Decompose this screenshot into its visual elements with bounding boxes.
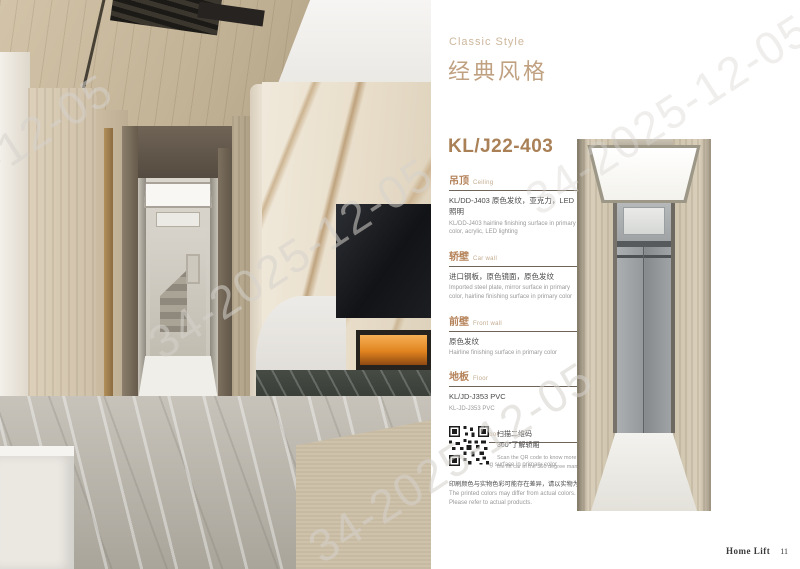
spec-desc-zh: KL/JD-J353 PVC (449, 391, 577, 402)
spec-header: 吊顶Ceiling (449, 172, 577, 187)
wall-picture-frame (186, 254, 200, 284)
spec-header: 轿壁Car wall (449, 248, 577, 263)
tv-screen (336, 204, 431, 318)
elevator-cab-interior (138, 178, 218, 400)
spec-section-floor: 地板Floor KL/JD-J353 PVC KL-JD-J353 PVC (449, 368, 577, 413)
pr-elevator-doors (617, 247, 671, 433)
spec-title-zh: 吊顶 (449, 176, 469, 187)
qr-code-icon (449, 426, 489, 466)
style-label-en: Classic Style (449, 36, 525, 48)
model-code: KL/J22-403 (448, 136, 553, 158)
spec-title-en: Car wall (473, 256, 497, 262)
spec-title-zh: 地板 (449, 372, 469, 383)
disclaimer-en: The printed colors may differ from actua… (449, 490, 581, 508)
pr-ceiling-light-panel (589, 148, 699, 200)
page-footer: Home Lift11 (726, 541, 788, 559)
pr-door-split-line (643, 247, 644, 433)
elevator-door-frame-left (122, 126, 138, 440)
spec-desc-zh: KL/DD-J403 原色发纹，亚克力，LED照明 (449, 195, 577, 218)
pr-door-rail (617, 255, 671, 258)
footer-page-number: 11 (780, 547, 788, 556)
qr-block: 扫描二维码 360°了解轿厢 Scan the QR code to know … (449, 426, 592, 471)
spec-title-en: Front wall (473, 321, 502, 327)
divider (449, 386, 577, 387)
spec-section-front-wall: 前壁Front wall 原色发纹 Hairline finishing sur… (449, 313, 577, 358)
spec-desc-en: KL-JD-J353 PVC (449, 405, 577, 414)
spec-section-car-wall: 轿壁Car wall 进口钢板，原色镜面，原色发纹 Imported steel… (449, 248, 577, 302)
cab-through-view (150, 228, 206, 362)
cab-floor (138, 356, 218, 400)
divider (449, 190, 577, 191)
spec-header: 地板Floor (449, 368, 577, 383)
spec-title-en: Floor (473, 376, 488, 382)
fireplace-flame (360, 335, 427, 365)
marble-bench (0, 446, 74, 569)
bronze-trim (104, 128, 113, 428)
footer-brand: Home Lift (726, 546, 770, 556)
style-title-zh: 经典风格 (448, 54, 548, 86)
spec-desc-en: Imported steel plate, mirror surface in … (449, 284, 577, 301)
spec-title-zh: 轿壁 (449, 252, 469, 263)
pr-door-jamb-right (671, 203, 675, 433)
spec-title-en: Ceiling (473, 180, 493, 186)
product-photo-elevator-interior (577, 139, 711, 511)
hero-photo (0, 0, 431, 569)
cab-ceiling-light (144, 182, 212, 208)
spec-title-zh: 前壁 (449, 317, 469, 328)
divider (449, 331, 577, 332)
cab-ceiling-light-reflection (156, 212, 200, 227)
spec-desc-zh: 原色发纹 (449, 336, 577, 347)
catalog-page: 34-2025-12-05 34-2025-12-05 34-2025-12-0… (0, 0, 800, 569)
spec-desc-zh: 进口钢板，原色镜面，原色发纹 (449, 271, 577, 282)
area-rug (296, 420, 431, 569)
staircase (160, 270, 187, 332)
spec-desc-en: KL/DD-J403 hairline finishing surface in… (449, 220, 577, 237)
spec-section-ceiling: 吊顶Ceiling KL/DD-J403 原色发纹，亚克力，LED照明 KL/D… (449, 172, 577, 237)
fireplace (356, 330, 431, 374)
pr-transom-mirror (623, 207, 665, 235)
spec-header: 前壁Front wall (449, 313, 577, 328)
divider (449, 266, 577, 267)
spec-desc-en: Hairline finishing surface in primary co… (449, 349, 577, 358)
